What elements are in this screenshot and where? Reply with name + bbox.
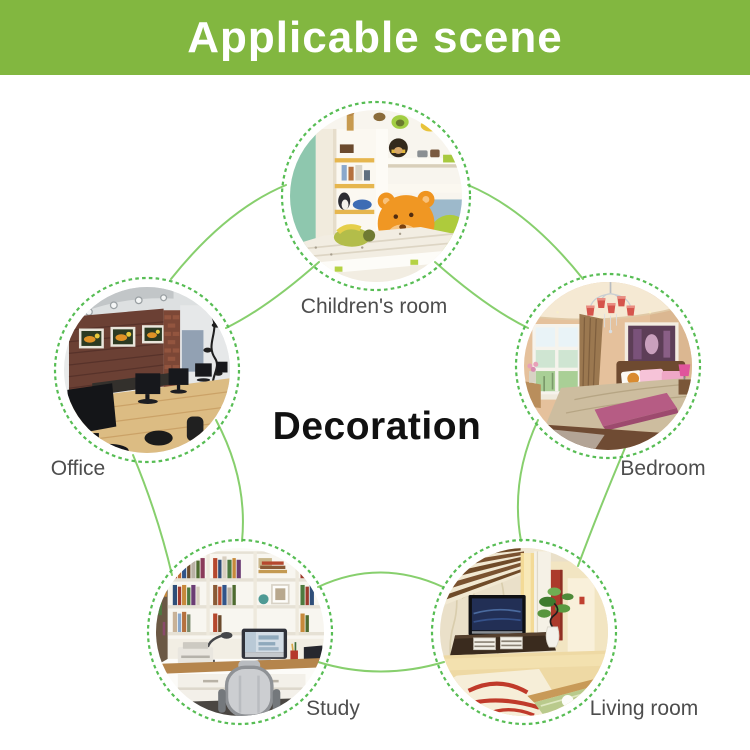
bedroom-illustration <box>524 282 692 450</box>
children-shelf-unit <box>316 110 376 242</box>
living-room-photo <box>440 548 608 716</box>
office-photo <box>64 287 230 453</box>
bedroom-label: Bedroom <box>620 457 705 481</box>
study-illustration <box>156 548 324 716</box>
living-room-label: Living room <box>590 697 699 721</box>
link-children-bedroom-outer <box>468 185 583 279</box>
office-illustration <box>64 287 230 453</box>
center-label: Decoration <box>273 405 482 449</box>
link-bedroom-living-outer <box>578 448 625 566</box>
link-study-living-upper <box>318 573 443 588</box>
children-room-illustration <box>290 110 462 282</box>
link-office-study-inner <box>216 420 243 541</box>
link-study-living-lower <box>318 662 444 672</box>
link-office-study-outer <box>133 455 172 575</box>
office-label: Office <box>51 457 105 481</box>
link-office-children-outer <box>171 185 286 279</box>
study-label: Study <box>306 697 360 721</box>
study-photo <box>156 548 324 716</box>
children-room-photo <box>290 110 462 282</box>
bedroom-picture <box>625 322 679 366</box>
living-room-illustration <box>440 548 608 716</box>
children-room-label: Children's room <box>301 295 447 319</box>
link-children-bedroom-inner <box>435 262 528 328</box>
living-tv <box>469 595 526 635</box>
bedroom-photo <box>524 282 692 450</box>
link-bedroom-living-inner <box>518 420 538 541</box>
applicable-scene-diagram: Applicable scene <box>0 0 750 750</box>
